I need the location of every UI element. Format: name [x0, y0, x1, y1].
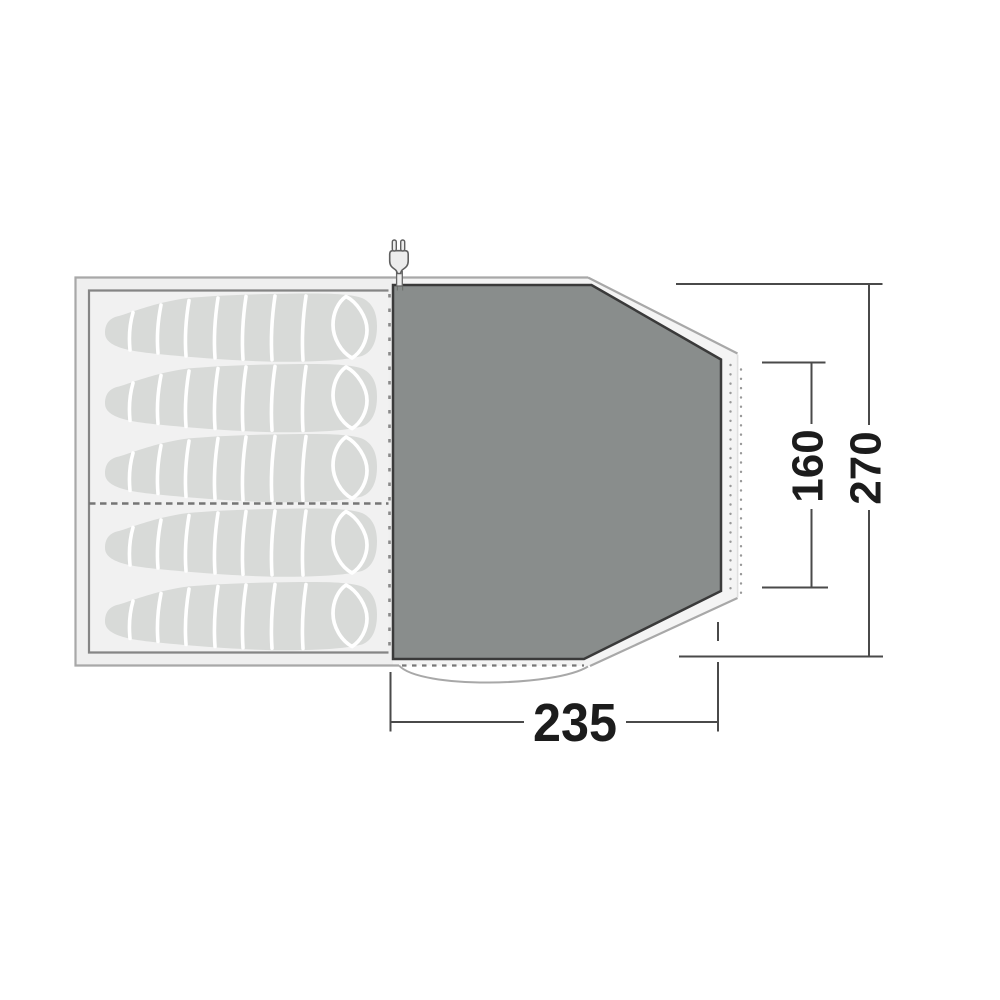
svg-text:270: 270 — [842, 431, 891, 504]
svg-text:160: 160 — [784, 429, 833, 502]
svg-text:235: 235 — [533, 693, 617, 753]
